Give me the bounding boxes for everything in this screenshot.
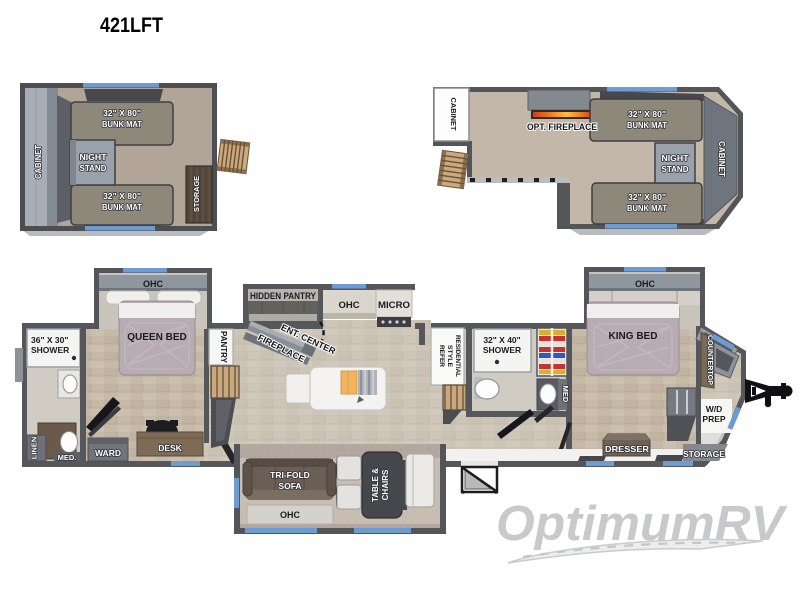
svg-text:QUEEN BED: QUEEN BED — [127, 332, 186, 343]
svg-text:32" X 80": 32" X 80" — [628, 109, 666, 119]
svg-text:BUNK MAT: BUNK MAT — [102, 202, 143, 212]
svg-text:STAND: STAND — [662, 165, 689, 174]
svg-text:MED.: MED. — [58, 453, 77, 462]
svg-text:BUNK MAT: BUNK MAT — [627, 120, 668, 130]
svg-text:DRESSER: DRESSER — [605, 444, 649, 454]
svg-text:32" X 80": 32" X 80" — [103, 108, 141, 118]
svg-text:BUNK MAT: BUNK MAT — [102, 119, 143, 129]
svg-text:STAND: STAND — [80, 164, 107, 173]
svg-text:MICRO: MICRO — [378, 300, 410, 310]
svg-text:TRI-FOLD: TRI-FOLD — [270, 470, 310, 480]
svg-text:CABINET: CABINET — [717, 141, 726, 177]
svg-text:36" X 30": 36" X 30" — [31, 335, 68, 345]
svg-text:LINEN: LINEN — [30, 437, 39, 460]
svg-text:OHC: OHC — [280, 510, 301, 520]
svg-text:PANTRY: PANTRY — [219, 331, 228, 364]
svg-text:OHC: OHC — [338, 300, 359, 311]
svg-text:32" X 40": 32" X 40" — [483, 335, 520, 345]
svg-text:STORAGE: STORAGE — [192, 176, 201, 212]
svg-text:RESIDENTIAL: RESIDENTIAL — [454, 335, 461, 377]
svg-text:SOFA: SOFA — [278, 481, 301, 491]
svg-text:COUNTERTOP: COUNTERTOP — [706, 335, 713, 385]
svg-text:STORAGE: STORAGE — [683, 449, 725, 459]
svg-text:OHC: OHC — [143, 279, 164, 289]
svg-text:CABINET: CABINET — [34, 145, 43, 179]
svg-text:NIGHT: NIGHT — [662, 154, 689, 163]
svg-text:SHOWER: SHOWER — [31, 345, 69, 355]
svg-text:STYLE: STYLE — [446, 345, 453, 368]
svg-text:32" X 80": 32" X 80" — [103, 191, 141, 201]
svg-text:PREP: PREP — [702, 414, 725, 424]
svg-text:OPT. FIREPLACE: OPT. FIREPLACE — [527, 122, 597, 132]
svg-text:DESK: DESK — [158, 443, 182, 453]
svg-text:TABLE &: TABLE & — [371, 468, 380, 502]
svg-text:KING BED: KING BED — [609, 331, 658, 342]
svg-text:BUNK MAT: BUNK MAT — [627, 203, 668, 213]
svg-text:32" X 80": 32" X 80" — [628, 192, 666, 202]
svg-text:CABINET: CABINET — [449, 98, 458, 131]
svg-text:421LFT: 421LFT — [100, 14, 163, 37]
svg-text:SHOWER: SHOWER — [483, 345, 521, 355]
svg-text:W/D: W/D — [706, 404, 723, 414]
svg-text:MED: MED — [561, 386, 570, 403]
svg-text:NIGHT: NIGHT — [80, 153, 107, 162]
svg-text:OHC: OHC — [635, 279, 656, 289]
svg-text:REFER: REFER — [438, 345, 445, 367]
svg-text:CHAIRS: CHAIRS — [381, 469, 390, 500]
svg-text:HIDDEN PANTRY: HIDDEN PANTRY — [250, 291, 316, 301]
svg-text:WARD: WARD — [95, 448, 121, 458]
